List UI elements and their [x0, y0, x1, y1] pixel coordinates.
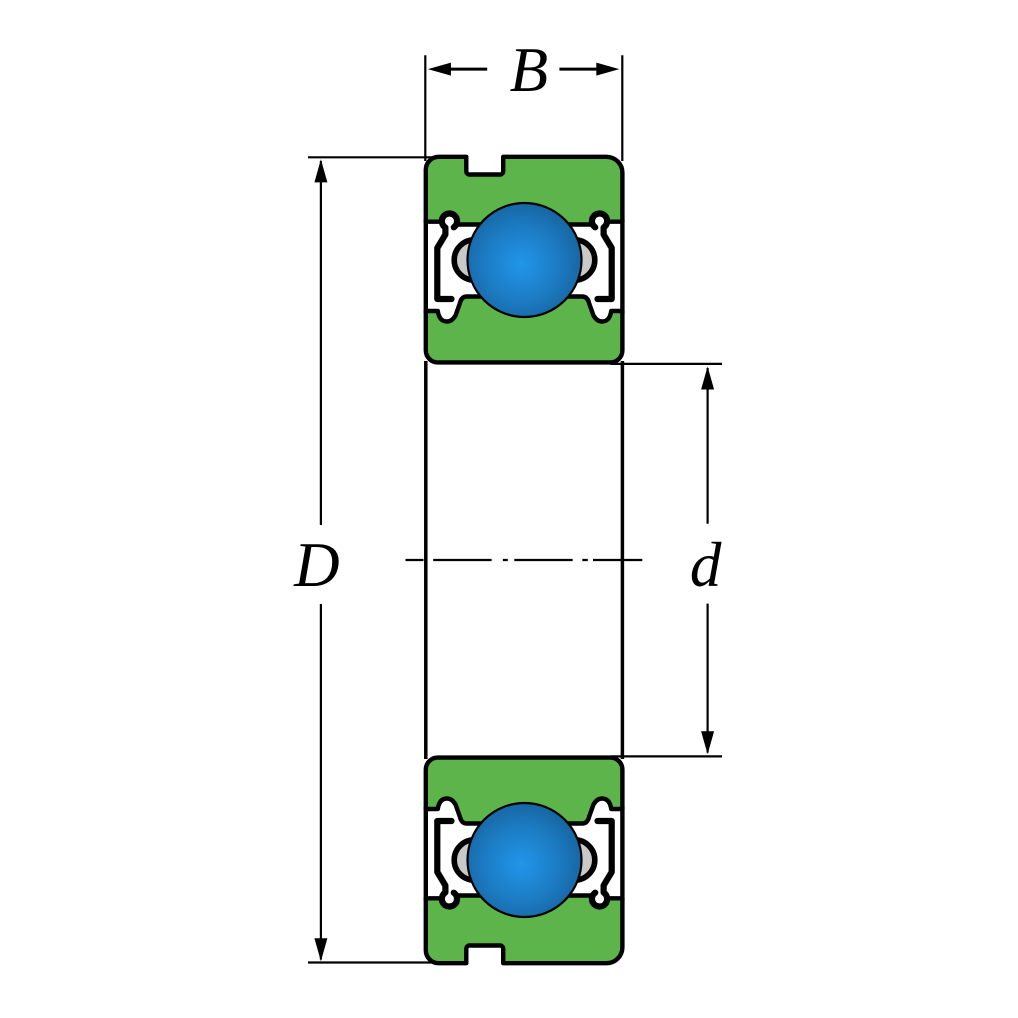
- svg-text:d: d: [690, 530, 722, 600]
- svg-text:B: B: [510, 35, 548, 105]
- svg-text:D: D: [293, 530, 340, 600]
